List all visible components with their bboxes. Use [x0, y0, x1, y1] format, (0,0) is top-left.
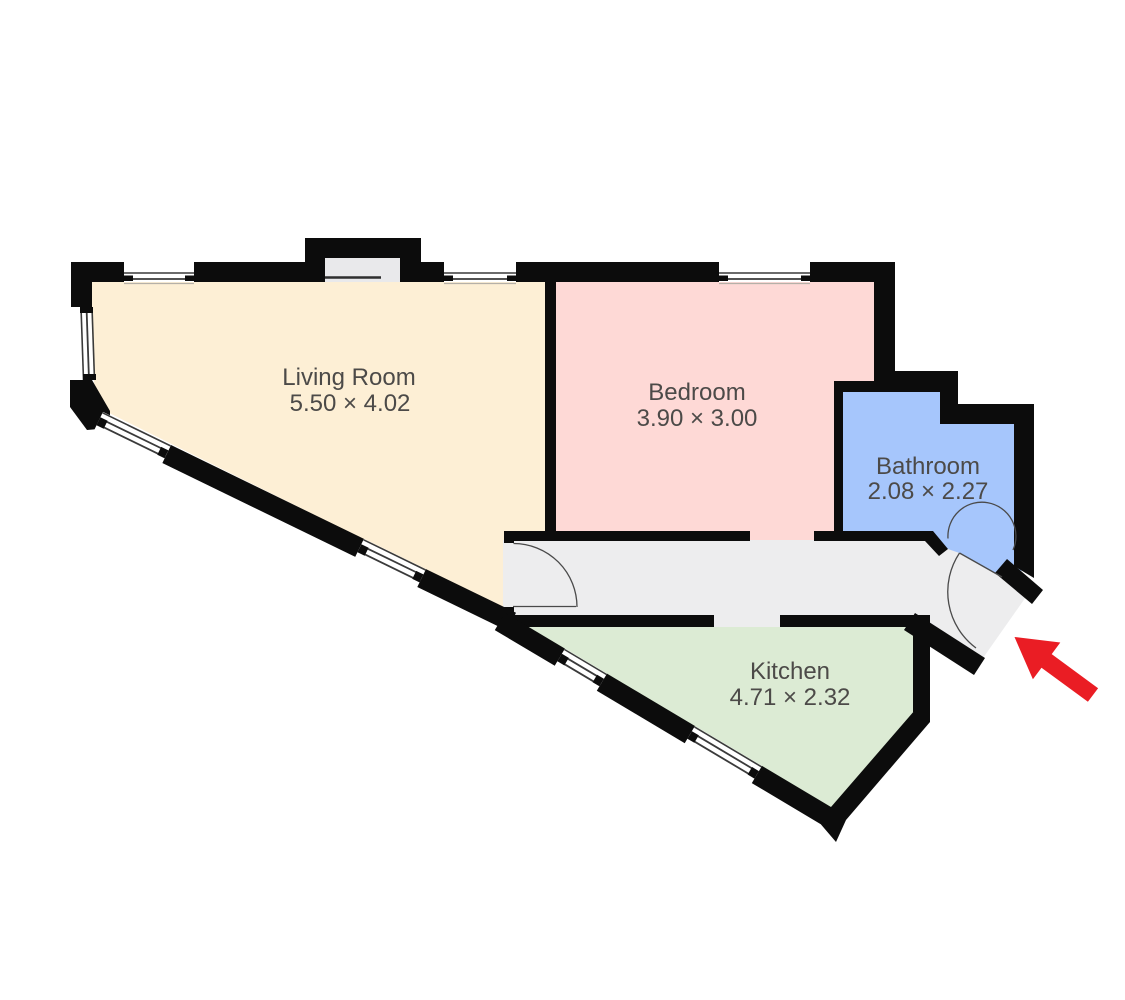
- svg-text:3.90 × 3.00: 3.90 × 3.00: [637, 405, 758, 432]
- svg-text:4.71 × 2.32: 4.71 × 2.32: [730, 684, 851, 711]
- svg-text:Bathroom: Bathroom: [876, 453, 980, 480]
- svg-text:2.08 × 2.27: 2.08 × 2.27: [868, 478, 989, 505]
- svg-text:5.50 × 4.02: 5.50 × 4.02: [290, 390, 411, 417]
- svg-text:Kitchen: Kitchen: [750, 658, 830, 685]
- svg-text:Bedroom: Bedroom: [648, 379, 745, 406]
- svg-text:Living Room: Living Room: [282, 364, 415, 391]
